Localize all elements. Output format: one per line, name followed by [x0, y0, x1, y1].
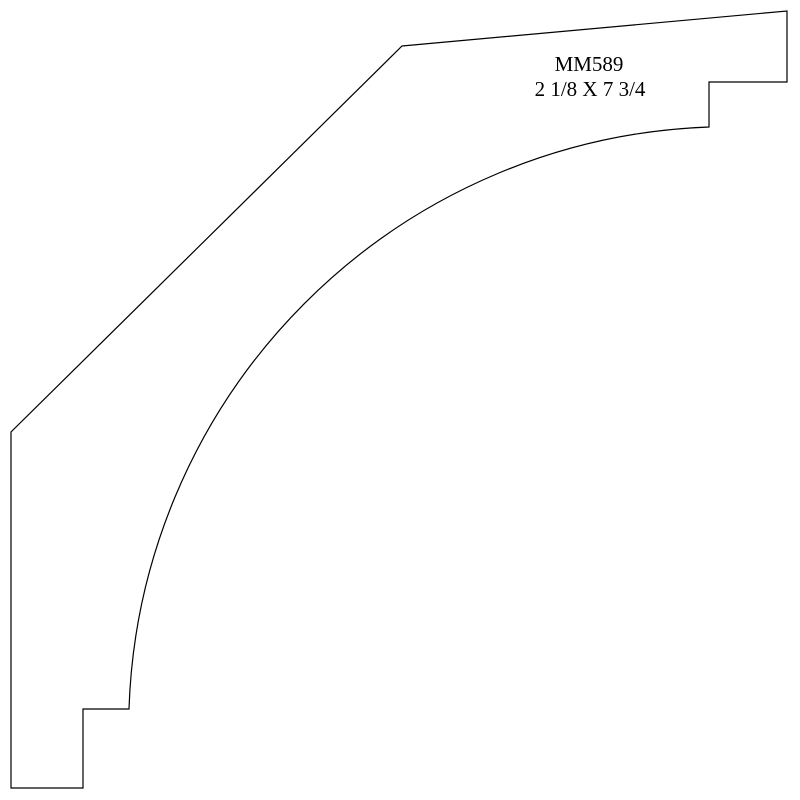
- molding-profile-drawing: MM589 2 1/8 X 7 3/4: [0, 0, 800, 800]
- profile-canvas: MM589 2 1/8 X 7 3/4: [0, 0, 800, 800]
- molding-outline-path: [11, 11, 787, 788]
- part-number-label: MM589: [555, 52, 624, 76]
- part-dimensions-label: 2 1/8 X 7 3/4: [535, 77, 646, 101]
